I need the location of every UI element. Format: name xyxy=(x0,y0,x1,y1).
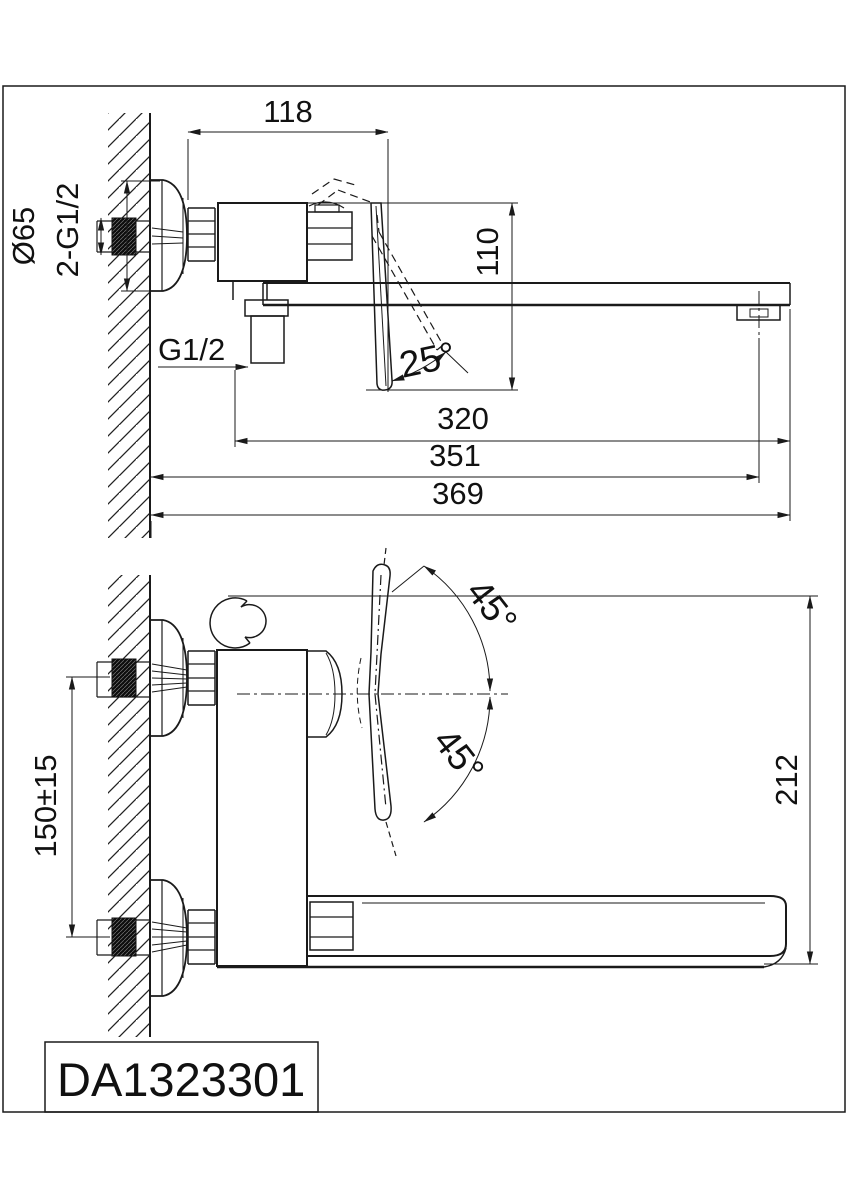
spout-front xyxy=(217,896,786,967)
mixer-body-front xyxy=(217,650,508,966)
faucet-technical-drawing: 118 110 Ø65 2-G1/2 G1/2 25° xyxy=(0,0,848,1200)
wall-section-front xyxy=(108,575,150,1037)
mixer-body-side xyxy=(218,202,352,281)
dim-outlet-label: G1/2 xyxy=(158,332,225,367)
side-view: 118 110 Ø65 2-G1/2 G1/2 25° xyxy=(6,94,790,538)
dim-angle-25-label: 25° xyxy=(396,334,459,386)
dim-118-label: 118 xyxy=(263,94,312,129)
dim-320-label: 320 xyxy=(437,401,489,436)
front-view: 45° 45° 150±15 212 xyxy=(28,548,818,1037)
shower-hook xyxy=(210,598,266,648)
technical-drawing-page: 118 110 Ø65 2-G1/2 G1/2 25° xyxy=(0,0,848,1200)
dim-angle-45-up-label: 45° xyxy=(458,572,525,641)
dim-angle-45-down-label: 45° xyxy=(425,721,492,790)
dim-110-label: 110 xyxy=(470,227,505,276)
threaded-nipple-side xyxy=(188,208,215,261)
model-number: DA1323301 xyxy=(57,1053,305,1106)
spout-side xyxy=(263,283,790,338)
wall-section-side xyxy=(108,113,150,538)
dim-212-label: 212 xyxy=(769,754,804,806)
shower-outlet-side xyxy=(233,281,288,363)
escutcheon-side xyxy=(150,180,187,291)
dim-supply-label: 2-G1/2 xyxy=(50,183,85,278)
dim-351-label: 351 xyxy=(429,438,481,473)
dim-150-label: 150±15 xyxy=(28,754,63,857)
handle-front xyxy=(357,548,396,856)
title-block: DA1323301 xyxy=(45,1042,318,1112)
dim-diameter-label: Ø65 xyxy=(6,207,41,266)
handle-closed-side xyxy=(371,203,392,390)
dim-369-label: 369 xyxy=(432,476,484,511)
escutcheon-front-bottom xyxy=(150,880,215,996)
